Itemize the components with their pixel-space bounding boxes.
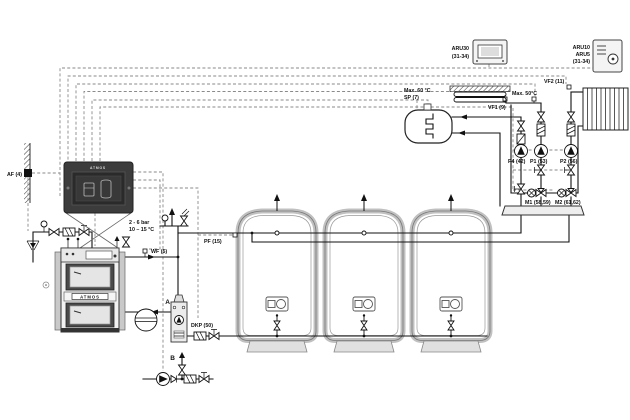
room-unit-aru30 (473, 40, 507, 64)
small-valve-icon (123, 237, 130, 247)
manifold (502, 206, 584, 215)
room-unit-aru10-aru5 (593, 40, 622, 72)
expansion-vessel (135, 309, 157, 331)
mixer-m1 (528, 189, 547, 198)
label-aru5-name: ARU5 (576, 52, 590, 58)
label-vf1: VF1 (9) (488, 105, 506, 111)
label-pressure-range: 2 - 6 bar (129, 220, 149, 226)
label-m2: M2 (61,62) (555, 200, 581, 206)
label-af: AF (4) (7, 172, 22, 178)
sensor-max50 (532, 97, 536, 101)
filter-icon (184, 375, 196, 383)
panel-screw-icon (128, 187, 131, 190)
valve-icon (49, 229, 59, 236)
mixer-m2 (558, 189, 577, 198)
sensor-vf2 (567, 85, 571, 89)
label-wf: WF (5) (151, 249, 167, 255)
label-sp: SP (7) (404, 95, 419, 101)
label-temp-range: 10 – 15 °C (129, 227, 154, 233)
buffer-tank-3 (412, 194, 490, 352)
buffer-tank-2 (325, 194, 403, 352)
heating-circuit-2 (558, 112, 578, 197)
sensor-pf (233, 233, 237, 237)
label-aru10-name: ARU10 (573, 45, 590, 51)
filter-icon (194, 332, 206, 340)
label-vf2: VF2 (11) (544, 79, 565, 85)
heating-circuit-1 (528, 112, 548, 197)
label-p1: P1 (53) (530, 159, 548, 165)
outdoor-sensor-af (24, 169, 32, 177)
control-panel: ATMOS (64, 162, 133, 213)
label-point-b: B (170, 355, 175, 362)
fill-pump (157, 373, 170, 386)
floor-heating-coil (454, 92, 506, 102)
filter-icon (537, 124, 545, 136)
label-m1: M1 (58,59) (525, 200, 551, 206)
label-dkp: DKP (50) (191, 323, 213, 329)
label-max50: Max. 50°C (512, 91, 537, 97)
label-pf: PF (15) (204, 239, 222, 245)
safety-group (162, 209, 189, 226)
pump-p4 (515, 145, 528, 158)
valve-icon (568, 112, 575, 122)
check-valve-icon (517, 134, 525, 144)
radiator (583, 88, 628, 130)
sensor-wf (143, 249, 147, 253)
valve-icon (179, 365, 186, 375)
drain-funnel-icon (30, 243, 36, 248)
fill-loop (157, 365, 210, 386)
label-p4: P4 (42) (508, 159, 526, 165)
label-aru10-terminals: (31-34) (573, 59, 590, 65)
valve-icon (518, 121, 525, 131)
dhw-tank (405, 104, 452, 143)
panel-screw-icon (67, 187, 70, 190)
label-p2: P2 (56) (560, 159, 578, 165)
boiler-pump-dkp (175, 316, 184, 325)
pressure-gauge-icon (162, 215, 168, 221)
valve-icon (538, 112, 545, 122)
label-point-a: A (165, 299, 170, 306)
pump-p1 (535, 145, 548, 158)
schematic-canvas: ATMOS ATMOS (0, 0, 630, 420)
panel-brand-label: ATMOS (90, 166, 106, 170)
gauge-icon (41, 221, 47, 227)
label-aru30-name: ARU30 (452, 46, 469, 52)
pump-p2 (565, 145, 578, 158)
buffer-tank-1 (238, 194, 316, 352)
filter-icon (63, 228, 75, 236)
label-max60: Max. 60 °C (404, 88, 431, 94)
label-aru30-terminals: (31-34) (452, 54, 469, 60)
floor-heating-slab (450, 86, 510, 92)
boiler-brand-label: ATMOS (80, 295, 100, 300)
boiler-thermostat-panel (86, 251, 112, 259)
laddomat-unit (171, 295, 187, 342)
schematic-page: ATMOS ATMOS (0, 0, 630, 420)
filter-icon (567, 124, 575, 136)
safety-valve-icon (181, 216, 188, 226)
